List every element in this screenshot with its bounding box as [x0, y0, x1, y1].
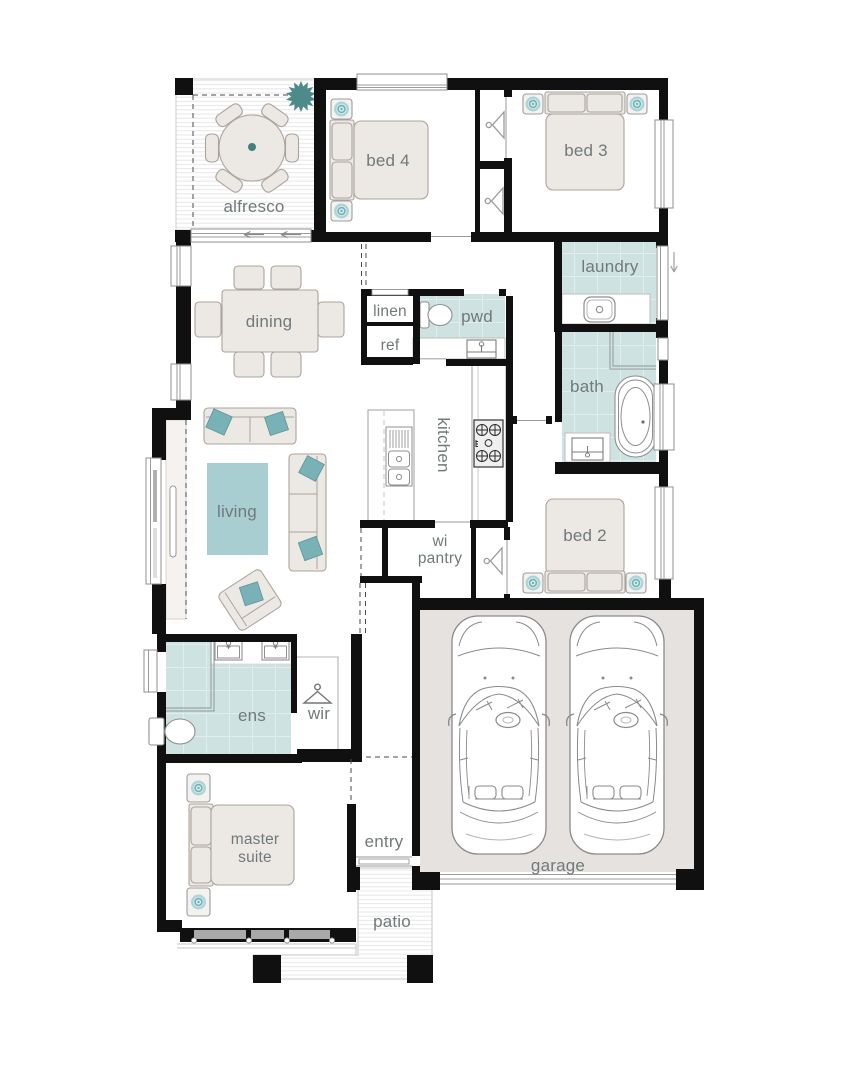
svg-text:ref: ref — [381, 337, 400, 354]
svg-text:bed 4: bed 4 — [366, 151, 410, 170]
svg-text:bath: bath — [570, 377, 604, 396]
svg-text:patio: patio — [373, 912, 411, 931]
svg-text:alfresco: alfresco — [223, 197, 284, 216]
svg-text:kitchen: kitchen — [434, 417, 453, 472]
svg-text:bed 3: bed 3 — [564, 141, 608, 160]
svg-text:bed 2: bed 2 — [563, 526, 607, 545]
svg-text:master: master — [231, 831, 280, 848]
svg-text:pantry: pantry — [418, 550, 462, 567]
svg-text:wir: wir — [307, 704, 330, 723]
svg-text:pwd: pwd — [461, 307, 493, 326]
svg-text:living: living — [217, 502, 257, 521]
svg-text:laundry: laundry — [581, 257, 638, 276]
svg-text:garage: garage — [531, 856, 585, 875]
svg-text:wi: wi — [431, 533, 447, 550]
svg-text:dining: dining — [246, 312, 293, 331]
svg-text:entry: entry — [365, 832, 404, 851]
svg-text:suite: suite — [238, 849, 272, 866]
svg-text:ens: ens — [238, 706, 266, 725]
svg-text:linen: linen — [373, 303, 407, 320]
